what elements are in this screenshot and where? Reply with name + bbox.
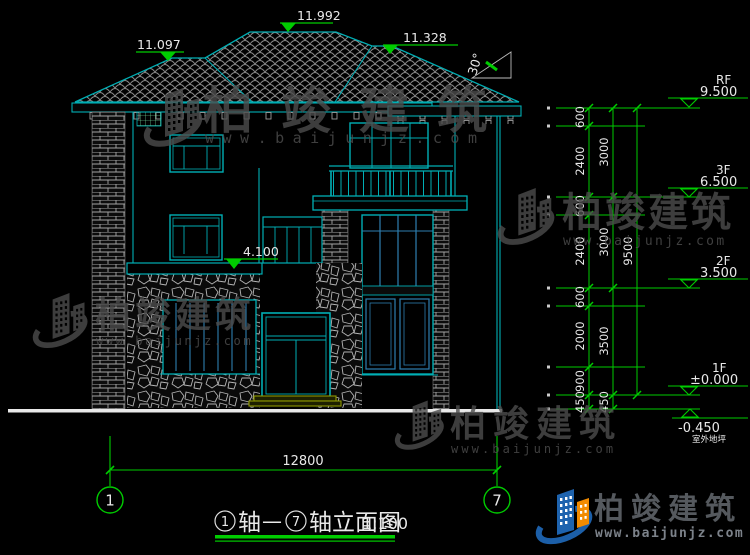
door-steps <box>249 396 341 406</box>
title-dash: — <box>262 509 282 533</box>
watermark-brand: 柏竣建筑 <box>562 190 734 236</box>
dim-seg-6: 900 <box>573 370 587 392</box>
slope-label: 30° <box>465 51 486 77</box>
dim-seg-5: 2000 <box>573 321 587 350</box>
level-value-1f: ±0.000 <box>690 373 738 388</box>
brick-pier-right <box>433 210 449 409</box>
title-seg1: 轴 <box>238 510 261 536</box>
balcony-balusters <box>331 171 451 197</box>
watermark-brand: 柏竣建筑 <box>450 404 622 445</box>
company-logo-brand: 柏竣建筑 <box>594 492 742 527</box>
level-value-ground: -0.450 <box>678 421 720 436</box>
brick-column-left <box>92 112 125 409</box>
axis-number-1: 1 <box>105 492 115 510</box>
watermark-right: 柏竣建筑 www.baijunjz.com <box>496 188 734 249</box>
watermark-left: 柏竣建筑 www.baijunjz.com <box>31 293 255 352</box>
dim-seg-4: 600 <box>573 286 587 308</box>
balcony-slab <box>313 196 467 210</box>
watermark-site: www.baijunjz.com <box>96 334 253 348</box>
watermark-bottom: 柏竣建筑 www.baijunjz.com <box>393 401 622 456</box>
level-roof-left: 11.097 <box>137 37 181 52</box>
overall-width-dim: 12800 <box>282 454 323 469</box>
title-bubble-1-num: 1 <box>221 515 229 530</box>
watermark-site: www.baijunjz.com <box>563 234 727 249</box>
dim-floor-2: 3500 <box>597 326 611 355</box>
title-bubble-7-num: 7 <box>292 515 300 530</box>
watermark-site: www.baijunjz.com <box>451 442 616 456</box>
watermark-brand: 柏竣建筑 <box>95 295 255 336</box>
ground-line <box>8 409 502 413</box>
company-logo: 柏竣建筑 www.baijunjz.com <box>534 489 744 548</box>
axis-number-7: 7 <box>492 492 502 510</box>
entry-door <box>262 313 330 398</box>
cad-canvas: 11.992 11.097 11.328 4.100 30° 600 2400 … <box>0 0 750 555</box>
bottom-dimension: 12800 1 7 <box>97 436 510 513</box>
level-roof-right: 11.328 <box>403 30 447 45</box>
brick-pier-center <box>322 210 348 263</box>
drawing-title: 1 轴 — 7 轴立面图 1:100 <box>215 509 408 542</box>
vent-grille <box>137 112 161 126</box>
company-logo-icon <box>534 489 594 548</box>
dim-floor-0: 3000 <box>597 137 611 166</box>
title-scale: 1:100 <box>362 514 408 533</box>
watermark-site: www.baijunjz.com <box>205 129 486 147</box>
elevation-drawing: 11.992 11.097 11.328 4.100 30° 600 2400 … <box>0 0 750 555</box>
floor-levels: RF 9.500 3F 6.500 2F 3.500 1F ±0.000 -0.… <box>668 73 748 445</box>
level-value-rf: 9.500 <box>700 85 737 100</box>
level-value-3f: 6.500 <box>700 175 737 190</box>
level-ridge: 11.992 <box>297 8 341 23</box>
title-underline-thin <box>215 541 395 542</box>
dim-seg-1: 2400 <box>573 146 587 175</box>
dim-seg-0: 600 <box>573 106 587 128</box>
level-canopy: 4.100 <box>243 244 279 259</box>
company-logo-site: www.baijunjz.com <box>595 526 744 541</box>
level-value-2f: 3.500 <box>700 266 737 281</box>
title-underline-thick <box>215 535 395 539</box>
balcony <box>313 166 467 210</box>
level-label-ground: 室外地坪 <box>692 434 727 445</box>
slope-symbol: 30° <box>465 51 511 78</box>
window-2f-left <box>170 215 222 260</box>
window-stack-right <box>358 215 438 375</box>
porch-canopy-slab <box>127 263 262 274</box>
extension-dots <box>547 107 550 411</box>
